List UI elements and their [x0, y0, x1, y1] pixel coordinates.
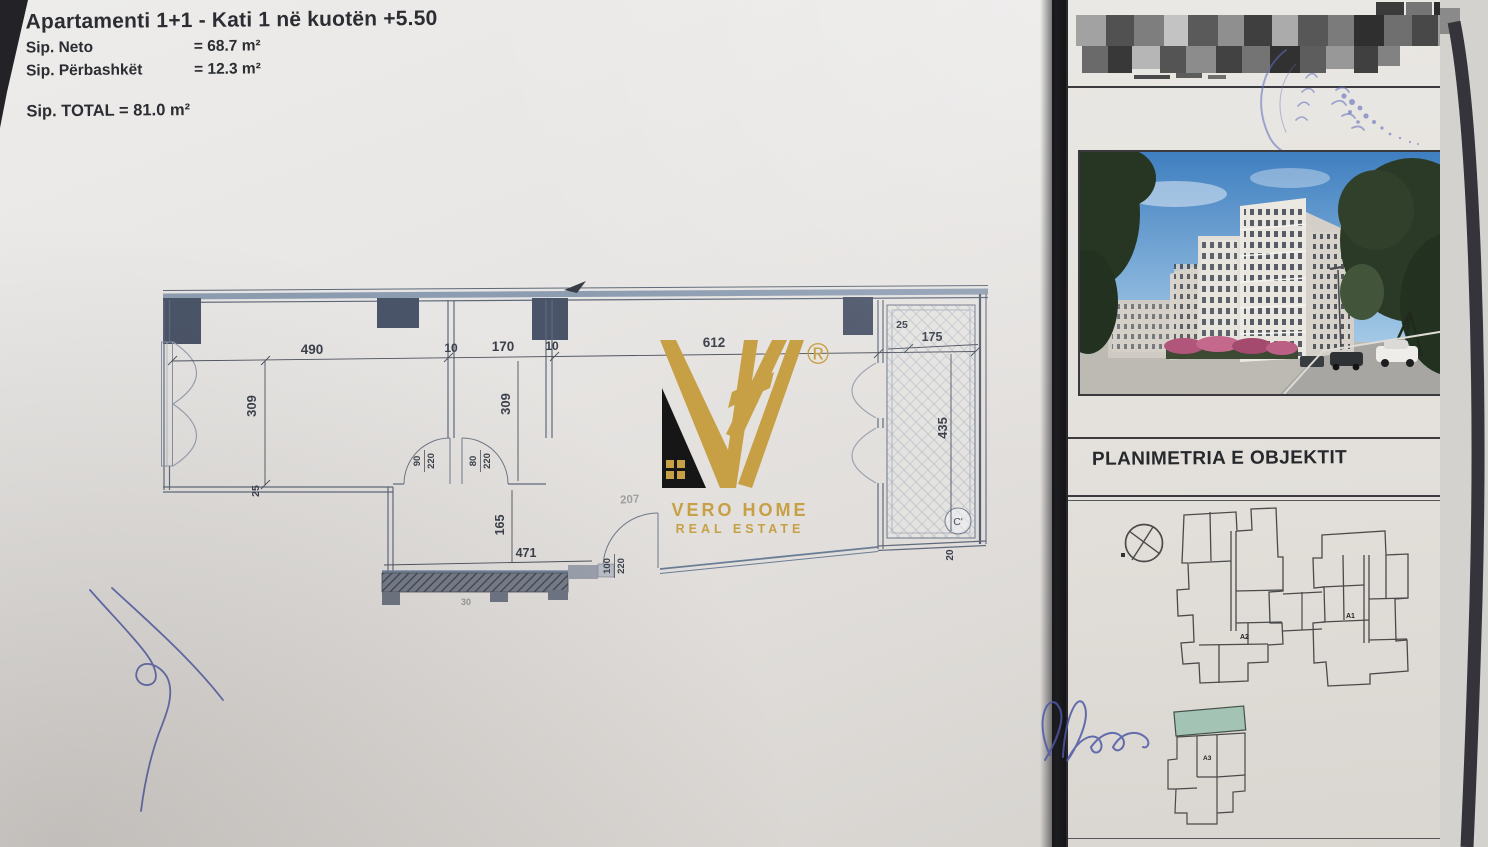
shared-area-value: = 12.3 m²: [194, 60, 261, 79]
apartment-header: Apartamenti 1+1 - Kati 1 në kuotën +5.50…: [26, 6, 587, 122]
svg-text:90: 90: [412, 456, 423, 467]
compass-icon: [1121, 525, 1163, 562]
section-separator-double-1: [1068, 495, 1488, 497]
dim-490: 490: [301, 342, 324, 357]
building-block-a1: [1313, 531, 1408, 686]
apartment-title: Apartamenti 1+1 - Kati 1 në kuotën +5.50: [26, 6, 586, 35]
svg-text:100: 100: [602, 558, 613, 574]
signature-right: [1005, 665, 1205, 815]
shared-area-label: Sip. Përbashkët: [26, 61, 194, 80]
panel-bottom-line: [1068, 838, 1488, 839]
hatched-wall: [382, 564, 614, 605]
logo-tagline: REAL ESTATE: [640, 522, 840, 536]
total-area: Sip. TOTAL = 81.0 m²: [26, 98, 586, 122]
photo-edge-right: [1440, 0, 1488, 847]
net-area-row: Sip. Neto = 68.7 m²: [26, 35, 586, 58]
dim-207-faint: 207: [620, 493, 640, 506]
label-a1: A1: [1346, 613, 1355, 620]
vero-home-watermark: ® VERO HOME REAL ESTATE: [640, 328, 840, 543]
net-area-label: Sip. Neto: [26, 38, 194, 57]
building-render-photo: [1078, 150, 1466, 396]
logo-name: VERO HOME: [640, 500, 840, 521]
scanned-document: Apartamenti 1+1 - Kati 1 në kuotën +5.50…: [0, 0, 1488, 847]
dim-25-balcony: 25: [896, 319, 908, 331]
stamp-smudge: [1341, 93, 1419, 145]
floor-plan-drawing: C' 490: [160, 278, 992, 616]
floorplan-page: Apartamenti 1+1 - Kati 1 në kuotën +5.50…: [0, 0, 1052, 847]
section-separator-double-2: [1068, 500, 1488, 501]
dim-435: 435: [935, 417, 950, 439]
dim-20: 20: [945, 549, 956, 561]
render-scene: [1080, 152, 1464, 394]
dim-10b: 10: [545, 339, 559, 353]
vh-monogram: ®: [640, 328, 840, 490]
dim-471: 471: [516, 546, 537, 560]
dim-170: 170: [492, 339, 515, 354]
section-marker-label: C': [953, 516, 963, 528]
building-bridge: [1283, 592, 1322, 631]
dim-309-mid: 309: [498, 393, 513, 415]
svg-text:80: 80: [468, 456, 479, 467]
label-a2: A2: [1240, 634, 1249, 641]
dim-10a: 10: [444, 341, 458, 355]
dim-30-faint: 30: [461, 597, 471, 607]
net-area-value: = 68.7 m²: [194, 37, 261, 56]
door-label-80-220: 80 220: [468, 450, 493, 472]
dim-25-left: 25: [250, 485, 262, 497]
section-separator-top: [1068, 437, 1488, 439]
dim-165: 165: [493, 515, 507, 536]
signature-left: [75, 583, 285, 847]
building-block-a2: [1177, 508, 1283, 683]
section-title: PLANIMETRIA E OBJEKTIT: [1092, 447, 1347, 471]
dim-175: 175: [922, 330, 943, 344]
registered-mark: ®: [807, 338, 829, 371]
dim-309-left: 309: [244, 395, 259, 417]
shared-area-row: Sip. Përbashkët = 12.3 m²: [26, 58, 586, 81]
ink-stamp: [1246, 44, 1436, 164]
svg-text:220: 220: [482, 453, 493, 469]
interior-walls: [162, 294, 987, 574]
svg-text:220: 220: [426, 453, 437, 469]
svg-text:220: 220: [616, 558, 627, 574]
door-label-100-220: 100 220: [602, 554, 627, 578]
